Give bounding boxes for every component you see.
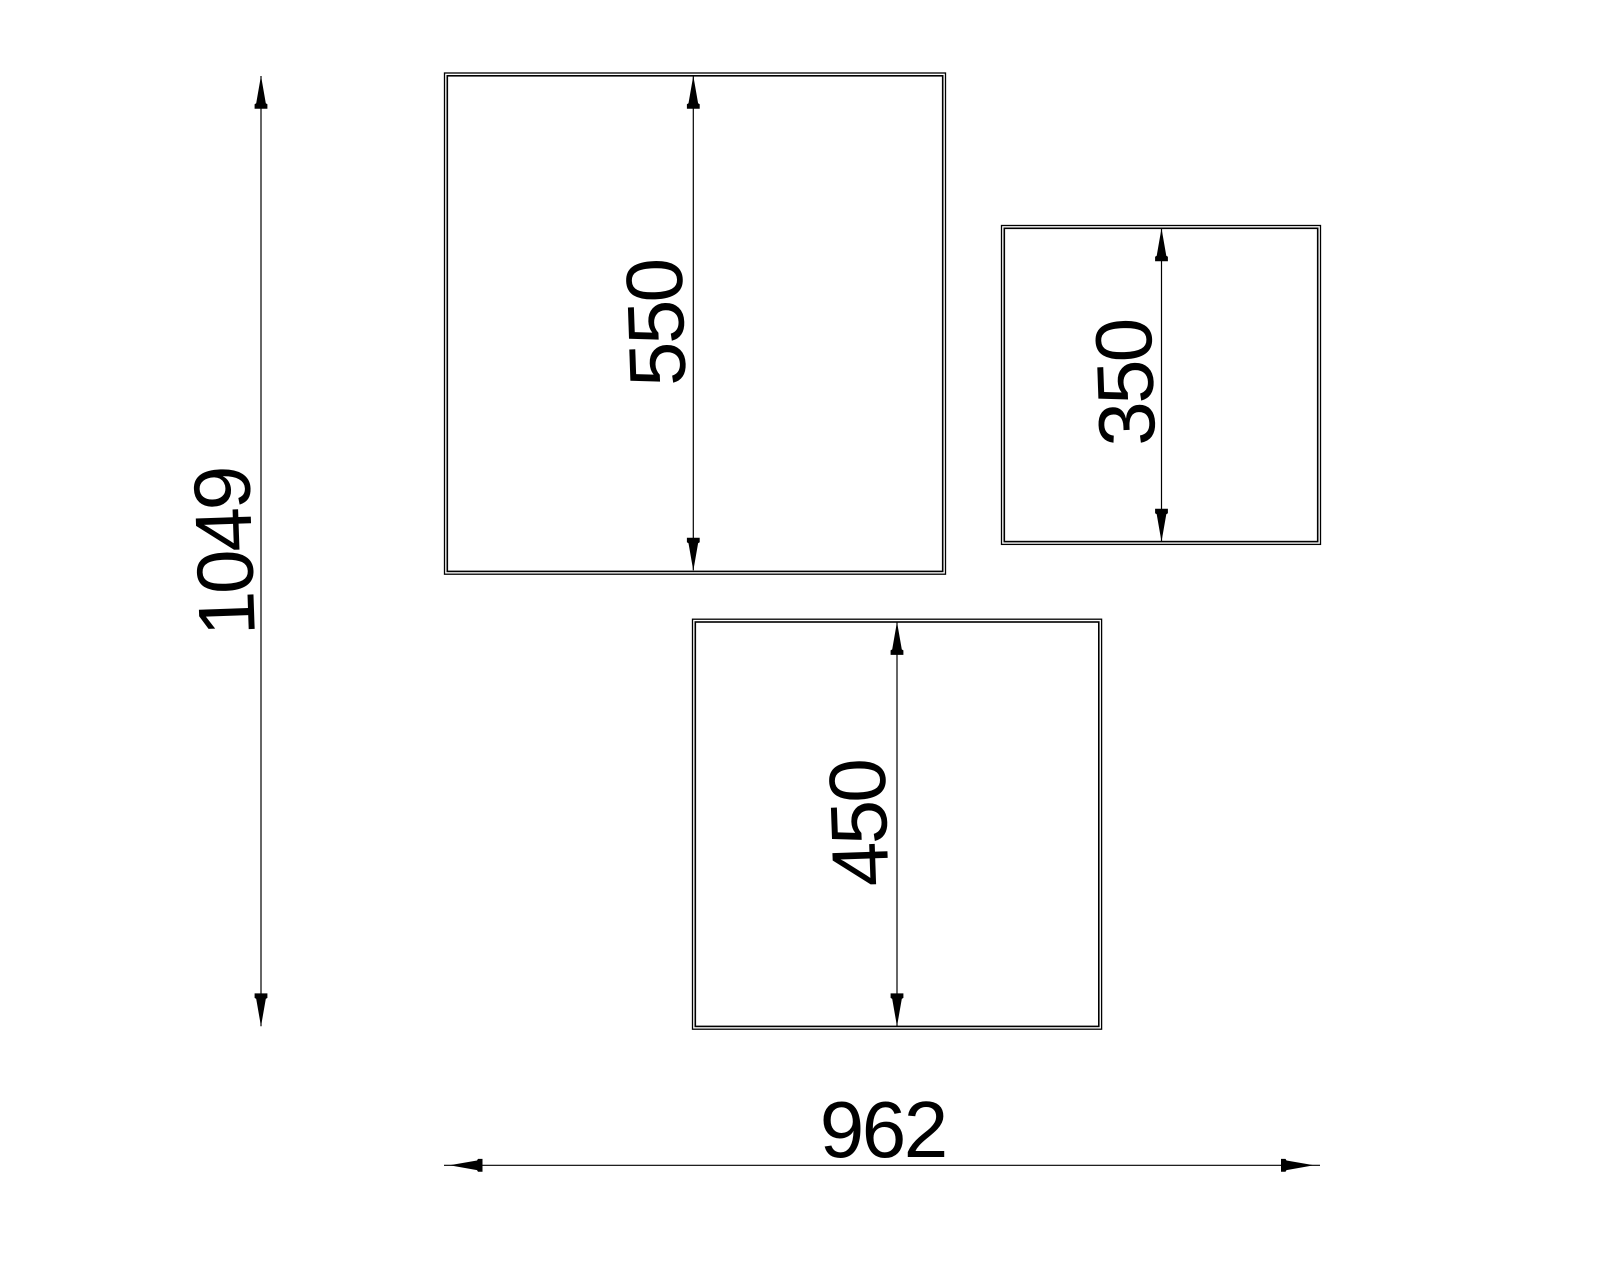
svg-text:962: 962 bbox=[820, 1085, 946, 1174]
svg-text:1049: 1049 bbox=[177, 467, 272, 638]
svg-text:450: 450 bbox=[812, 759, 905, 888]
svg-text:350: 350 bbox=[1079, 319, 1172, 448]
svg-text:550: 550 bbox=[609, 259, 702, 388]
